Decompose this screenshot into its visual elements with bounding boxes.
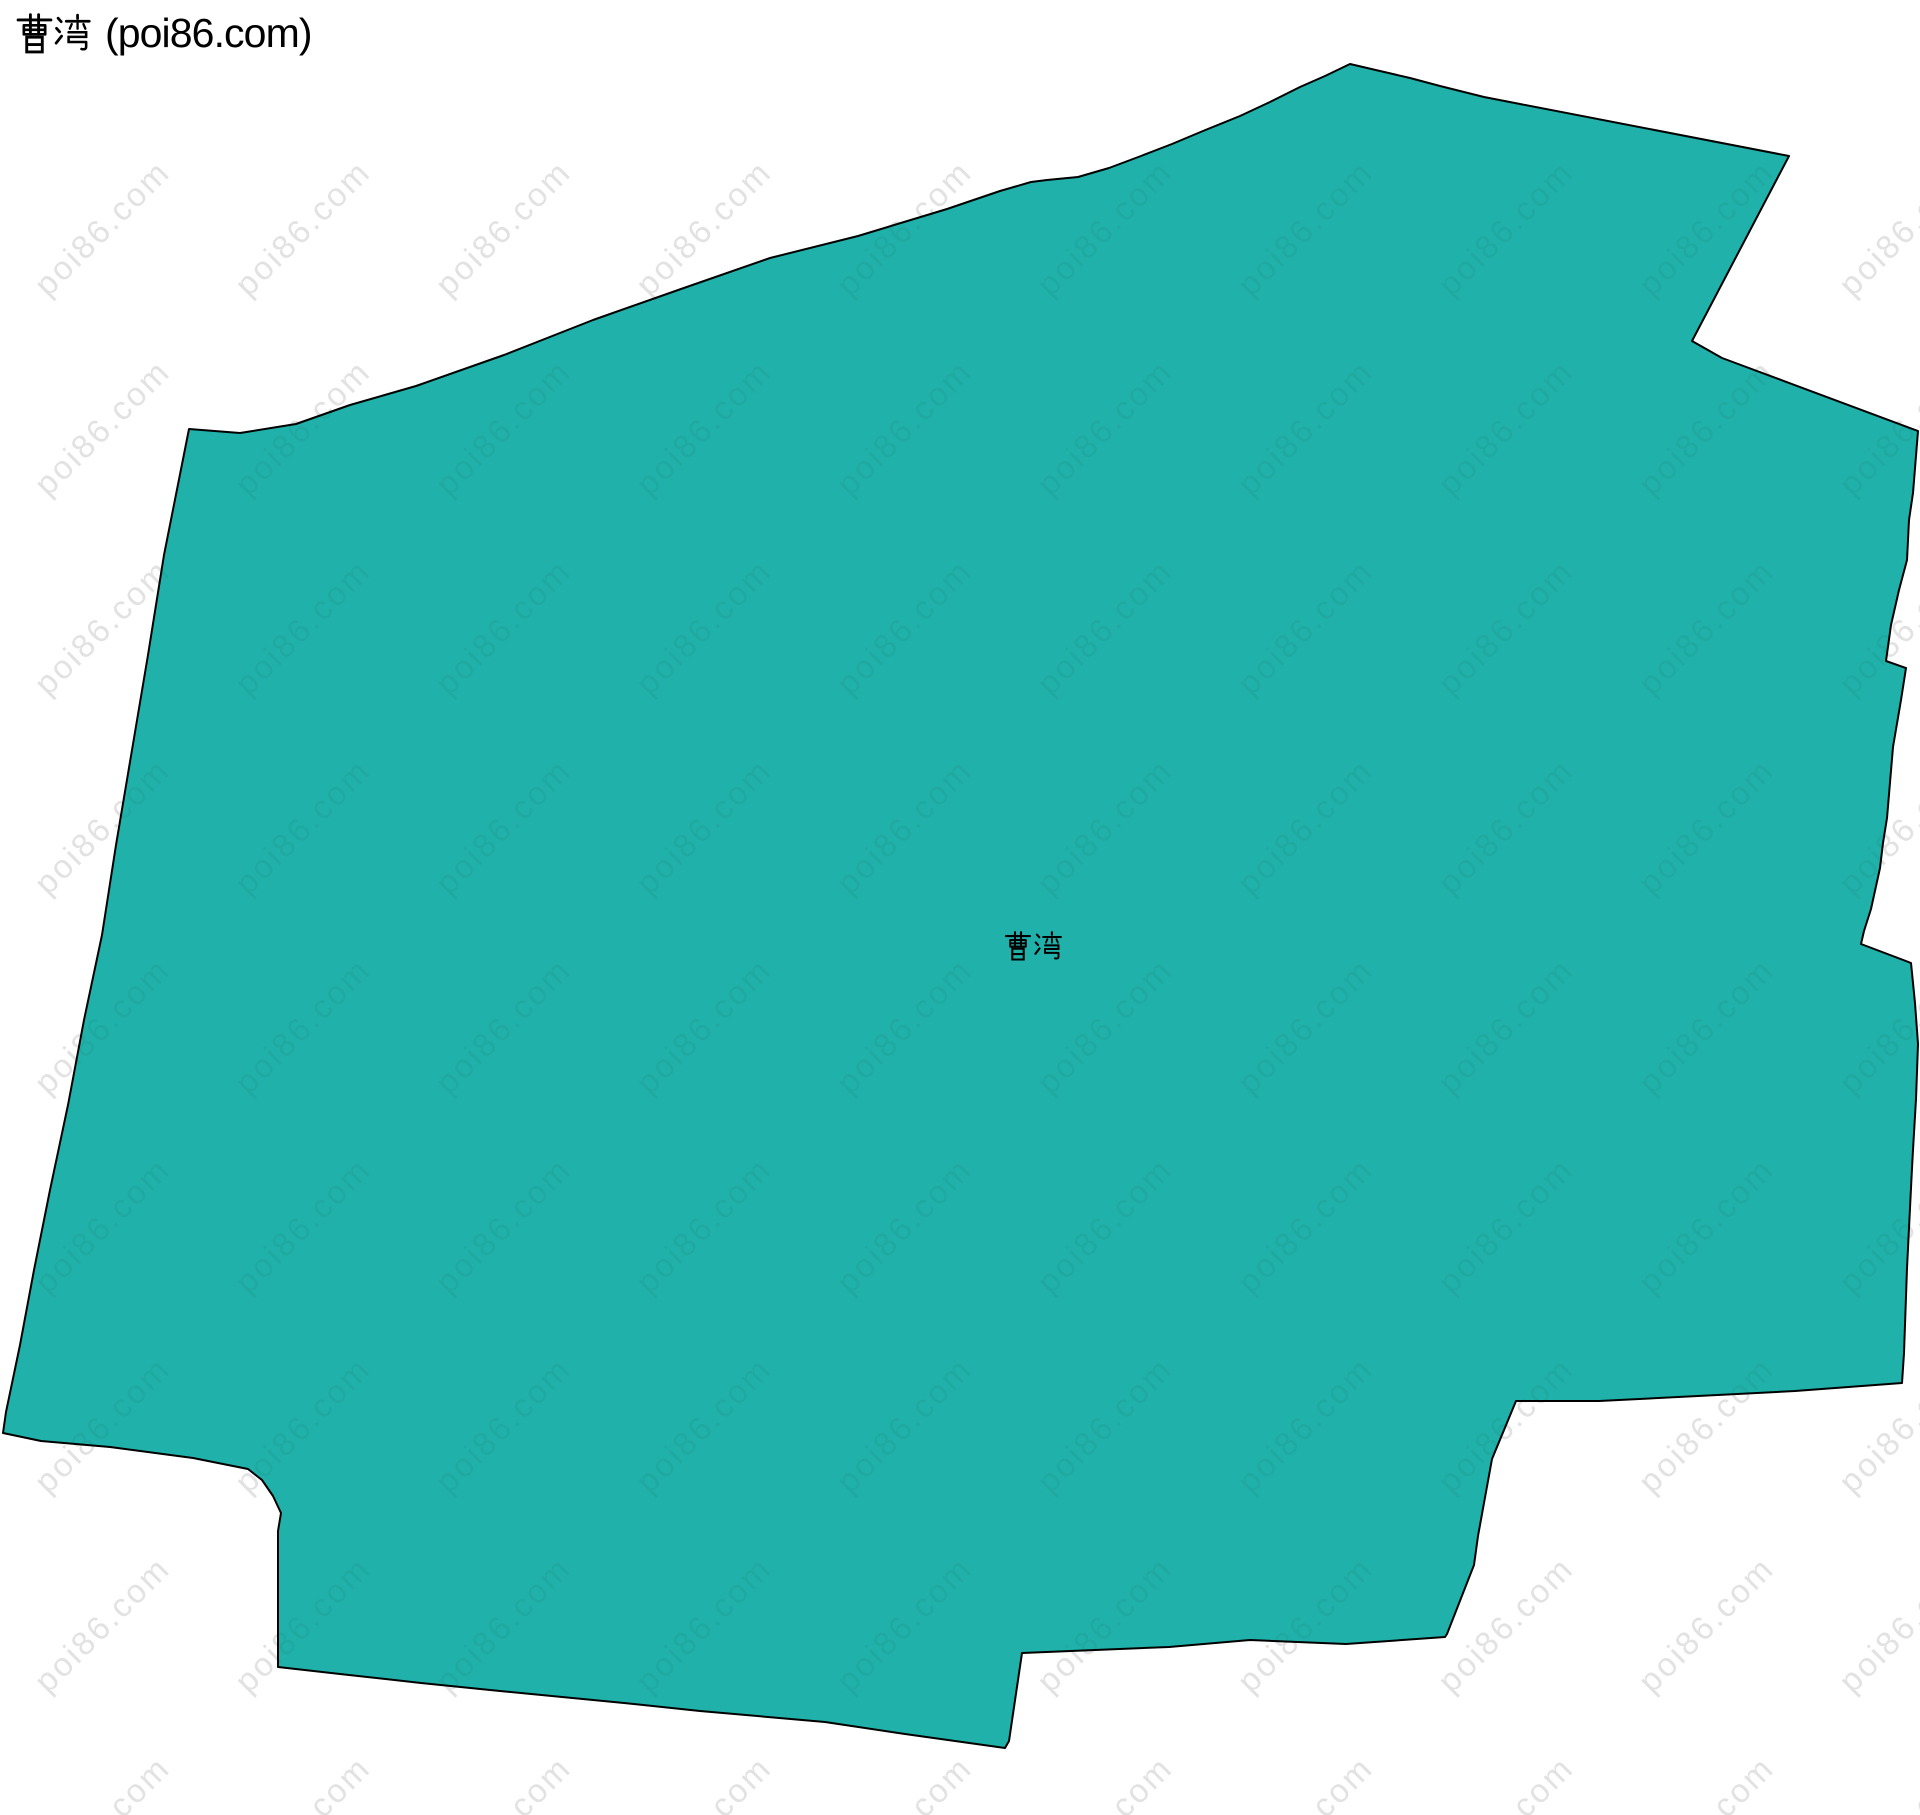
svg-text:(poi86.com): (poi86.com) bbox=[105, 10, 312, 56]
